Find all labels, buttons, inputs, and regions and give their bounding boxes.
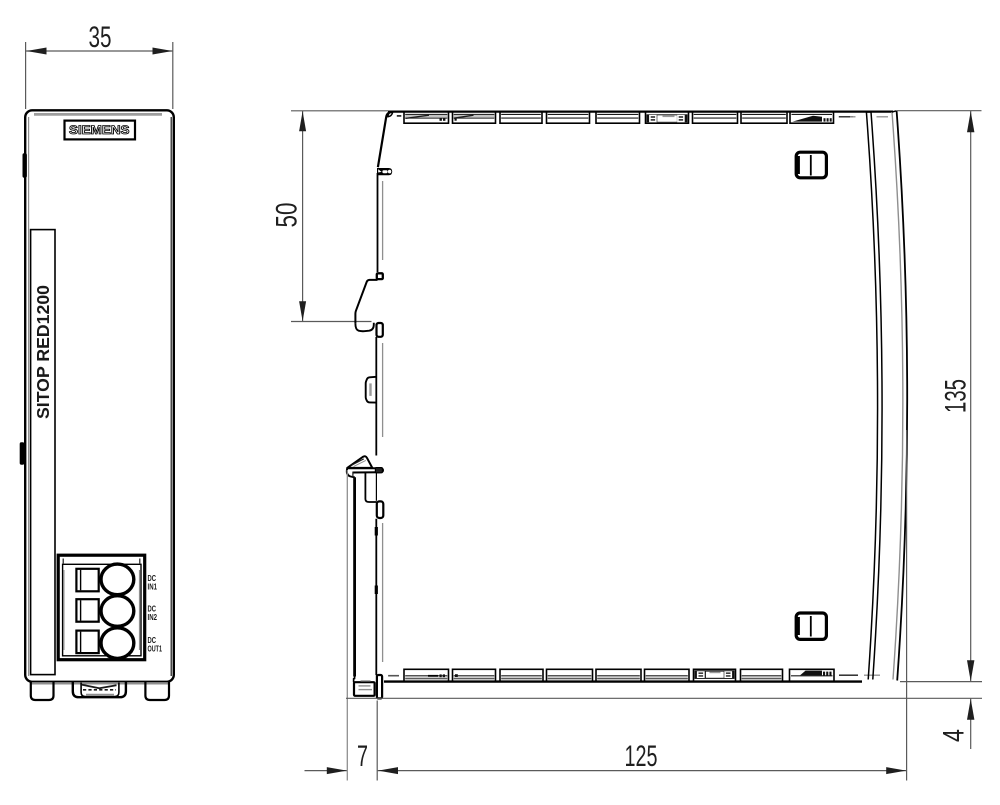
svg-text:SITOP RED1200: SITOP RED1200 bbox=[33, 285, 53, 419]
svg-text:50: 50 bbox=[271, 203, 304, 228]
svg-text:IN1: IN1 bbox=[148, 581, 158, 591]
svg-text:125: 125 bbox=[625, 740, 658, 773]
svg-text:SIEMENS: SIEMENS bbox=[69, 123, 130, 137]
svg-text:4: 4 bbox=[938, 729, 971, 742]
svg-text:IN2: IN2 bbox=[148, 612, 158, 622]
svg-text:135: 135 bbox=[940, 379, 973, 413]
svg-text:7: 7 bbox=[357, 740, 368, 773]
svg-text:OUT1: OUT1 bbox=[148, 643, 163, 653]
svg-text:35: 35 bbox=[89, 21, 112, 54]
